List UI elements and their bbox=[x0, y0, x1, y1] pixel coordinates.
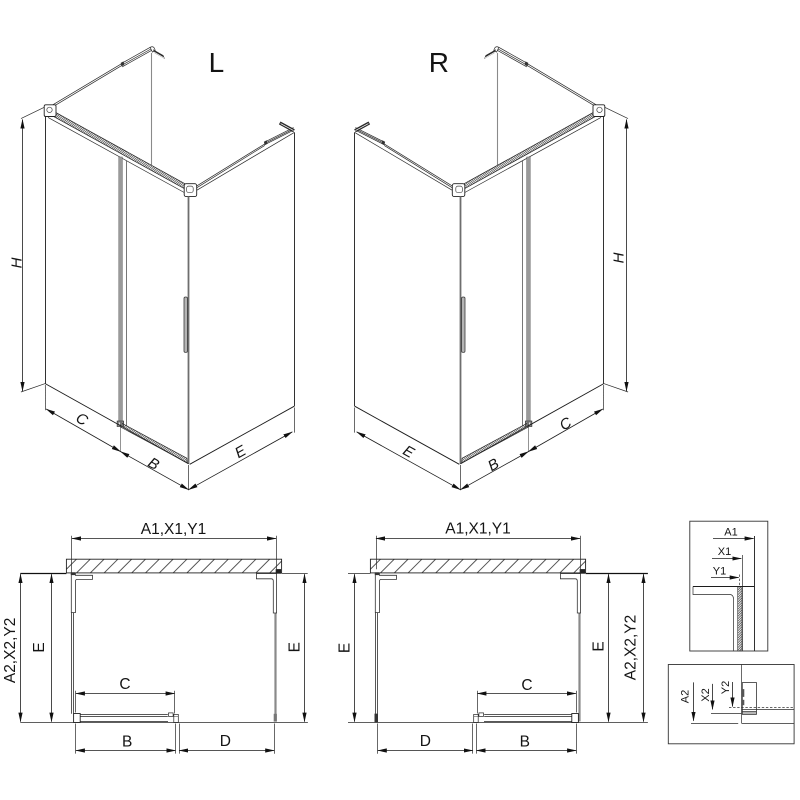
svg-text:D: D bbox=[220, 733, 231, 750]
svg-text:A1,X1,Y1: A1,X1,Y1 bbox=[141, 521, 207, 538]
svg-text:B: B bbox=[122, 733, 132, 750]
svg-text:Y1: Y1 bbox=[713, 565, 726, 577]
svg-text:D: D bbox=[420, 733, 431, 750]
svg-text:X1: X1 bbox=[718, 546, 731, 558]
svg-text:E: E bbox=[287, 642, 304, 652]
svg-text:H: H bbox=[9, 257, 26, 268]
svg-text:H: H bbox=[611, 252, 628, 263]
svg-text:Y2: Y2 bbox=[720, 681, 732, 694]
svg-text:E: E bbox=[590, 641, 607, 651]
svg-text:L: L bbox=[209, 47, 225, 78]
svg-text:A2,X2,Y2: A2,X2,Y2 bbox=[2, 618, 19, 684]
svg-text:A2: A2 bbox=[680, 690, 692, 703]
svg-text:A1,X1,Y1: A1,X1,Y1 bbox=[445, 521, 511, 538]
svg-text:R: R bbox=[429, 47, 449, 78]
svg-text:A1: A1 bbox=[724, 527, 737, 539]
svg-text:B: B bbox=[520, 733, 530, 750]
svg-text:E: E bbox=[337, 643, 354, 653]
svg-text:C: C bbox=[521, 677, 532, 694]
svg-text:A2,X2,Y2: A2,X2,Y2 bbox=[622, 615, 639, 681]
svg-text:X2: X2 bbox=[700, 688, 712, 701]
svg-text:C: C bbox=[119, 676, 130, 693]
svg-text:E: E bbox=[31, 642, 48, 652]
